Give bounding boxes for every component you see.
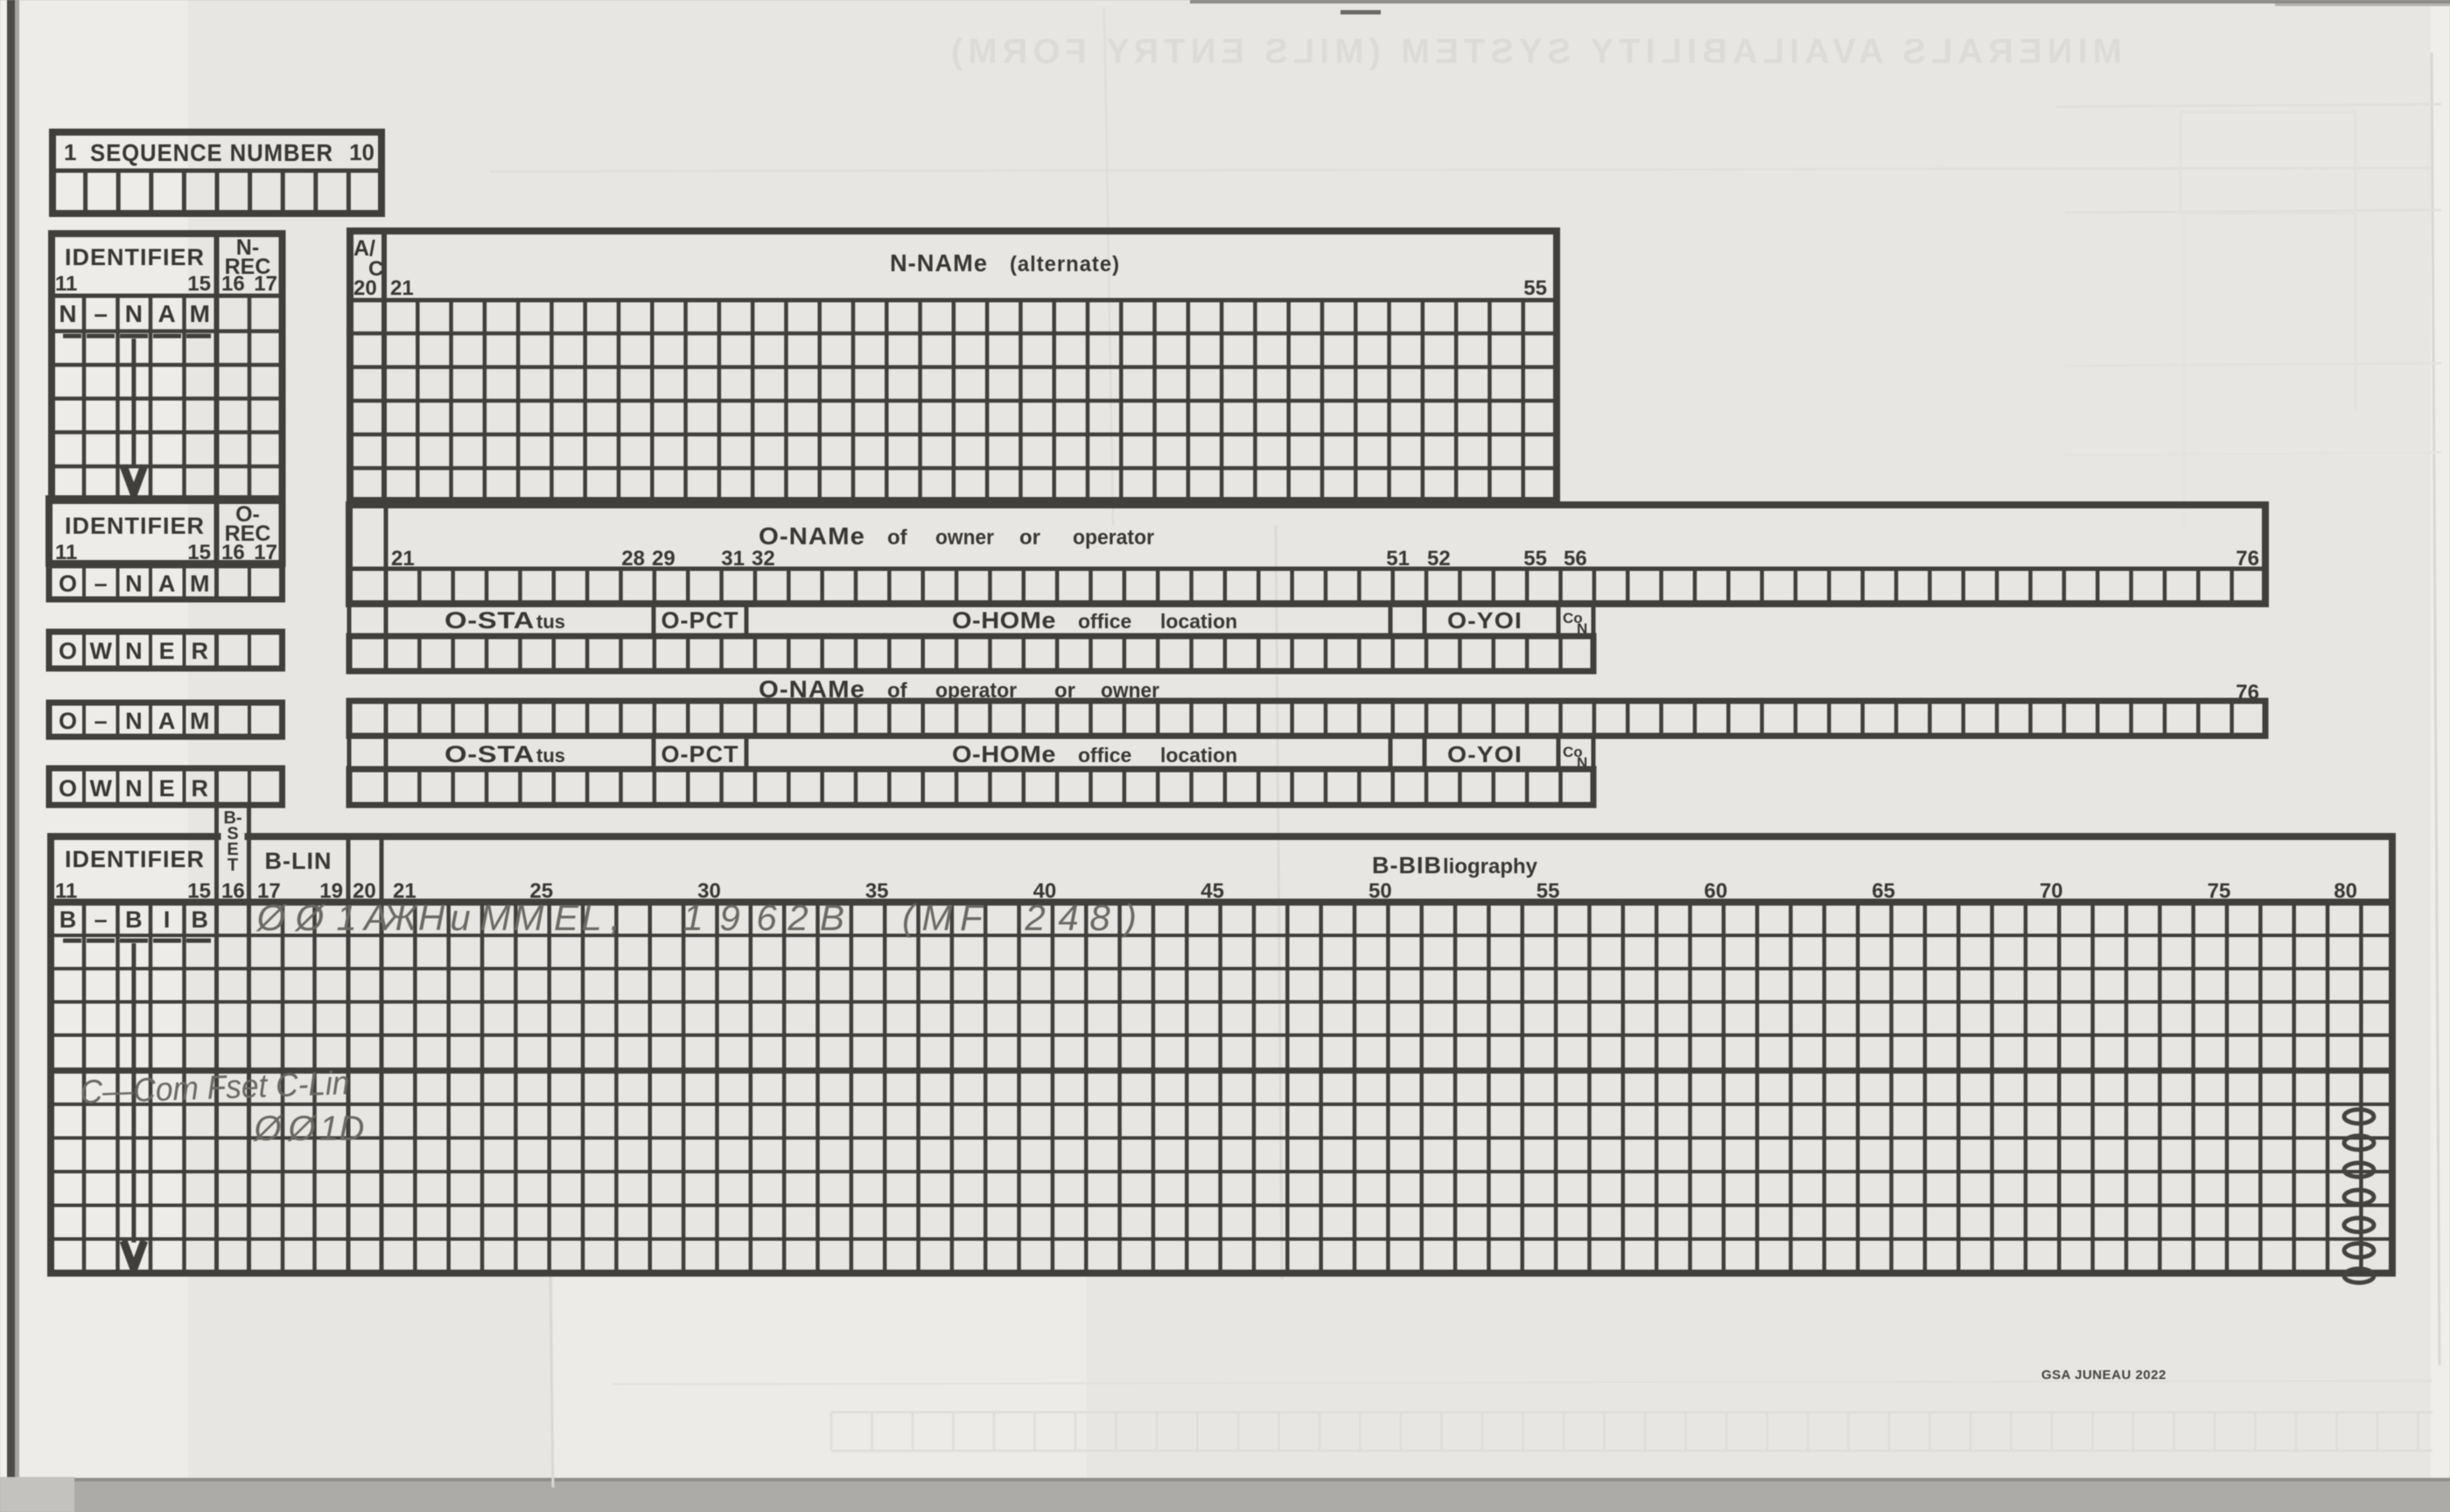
svg-text:N: N — [125, 775, 143, 801]
svg-text:GSA JUNEAU 2022: GSA JUNEAU 2022 — [2041, 1368, 2166, 1382]
svg-text:N: N — [125, 300, 143, 327]
svg-text:N: N — [125, 708, 143, 734]
svg-text:M: M — [514, 897, 544, 938]
svg-text:O: O — [59, 638, 77, 664]
svg-text:32: 32 — [752, 547, 775, 570]
svg-text:location: location — [1160, 610, 1237, 633]
svg-text:20: 20 — [353, 276, 377, 300]
svg-text:O-YOI: O-YOI — [1447, 607, 1522, 633]
svg-text:operator: operator — [1073, 526, 1154, 549]
svg-text:55: 55 — [1523, 276, 1547, 300]
svg-text:IDENTIFIER: IDENTIFIER — [65, 513, 205, 539]
svg-text:W: W — [89, 638, 112, 664]
svg-text:O: O — [59, 570, 77, 597]
svg-text:Ж: Ж — [381, 897, 419, 938]
svg-text:4: 4 — [1058, 897, 1078, 938]
svg-text:N: N — [125, 570, 143, 597]
svg-text:2: 2 — [1024, 897, 1045, 938]
svg-text:15: 15 — [187, 541, 211, 564]
svg-text:1: 1 — [682, 897, 703, 938]
svg-text:2: 2 — [787, 897, 808, 938]
svg-text:M: M — [922, 897, 953, 938]
svg-text:76: 76 — [2236, 547, 2259, 570]
svg-text:O-STA: O-STA — [444, 741, 535, 767]
svg-text:O-NAMe: O-NAMe — [759, 522, 865, 549]
svg-text:F: F — [960, 897, 984, 938]
svg-text:liography: liography — [1443, 855, 1538, 878]
svg-text:8: 8 — [1089, 897, 1110, 938]
svg-text:28: 28 — [621, 547, 645, 570]
svg-text:N: N — [59, 300, 76, 327]
svg-text:29: 29 — [652, 547, 675, 570]
svg-text:Ø: Ø — [294, 897, 326, 938]
svg-text:21: 21 — [390, 276, 414, 300]
svg-text:tus: tus — [536, 611, 565, 633]
svg-text:B: B — [192, 906, 209, 933]
svg-text:21: 21 — [391, 547, 415, 570]
svg-text:W: W — [89, 775, 112, 801]
svg-text:15: 15 — [187, 272, 211, 296]
svg-text:–: – — [94, 570, 108, 597]
svg-text:A: A — [158, 570, 176, 597]
svg-text:Ø: Ø — [252, 1109, 283, 1148]
svg-text:tus: tus — [536, 745, 565, 766]
svg-text:10: 10 — [349, 139, 374, 165]
svg-text:I: I — [164, 906, 171, 933]
svg-text:M: M — [480, 897, 511, 938]
svg-text:11: 11 — [55, 272, 77, 296]
svg-text:D: D — [339, 1109, 365, 1148]
svg-text:1: 1 — [336, 897, 356, 938]
svg-text:52: 52 — [1427, 547, 1451, 570]
svg-text:M: M — [190, 708, 210, 734]
svg-text:O-HOMe: O-HOMe — [952, 741, 1056, 767]
svg-text:R: R — [192, 638, 209, 664]
svg-text:or: or — [1019, 526, 1040, 549]
svg-text:Ø: Ø — [286, 1109, 318, 1148]
svg-text:B: B — [125, 906, 143, 933]
svg-text:O-YOI: O-YOI — [1447, 741, 1522, 767]
svg-text:O-PCT: O-PCT — [661, 607, 739, 633]
svg-text:–: – — [94, 300, 108, 327]
svg-text:N: N — [125, 638, 143, 664]
svg-text:office: office — [1078, 744, 1131, 766]
svg-text:T: T — [227, 856, 238, 875]
svg-text:location: location — [1160, 744, 1237, 766]
svg-text:of: of — [887, 526, 908, 549]
svg-text:B: B — [820, 897, 844, 938]
svg-text:11: 11 — [55, 541, 77, 564]
svg-text:N-NAMe: N-NAMe — [890, 249, 988, 276]
svg-text:H: H — [418, 897, 445, 938]
svg-text:office: office — [1078, 610, 1131, 633]
svg-text:L: L — [581, 897, 601, 938]
svg-text:E: E — [554, 897, 579, 938]
svg-text:R: R — [192, 775, 209, 801]
svg-text:B-BIB: B-BIB — [1372, 852, 1442, 878]
svg-text:55: 55 — [1523, 547, 1547, 570]
svg-text:B-LIN: B-LIN — [265, 848, 332, 874]
svg-text:(alternate): (alternate) — [1010, 252, 1120, 276]
svg-text:owner: owner — [935, 526, 994, 549]
svg-text:B: B — [59, 906, 77, 933]
svg-text:31: 31 — [721, 547, 745, 570]
svg-text:IDENTIFIER: IDENTIFIER — [65, 846, 205, 872]
svg-text:E: E — [159, 775, 175, 801]
svg-text:IDENTIFIER: IDENTIFIER — [65, 244, 205, 270]
svg-text:SEQUENCE NUMBER: SEQUENCE NUMBER — [90, 139, 333, 166]
svg-text:–: – — [94, 708, 108, 734]
svg-text:Ø: Ø — [255, 897, 288, 938]
svg-text:A: A — [158, 708, 176, 734]
svg-text:REC: REC — [225, 255, 271, 279]
svg-text:51: 51 — [1386, 547, 1410, 570]
svg-text:O: O — [59, 775, 77, 801]
svg-text:M: M — [190, 570, 210, 597]
svg-text:REC: REC — [225, 521, 271, 546]
svg-text:O-HOMe: O-HOMe — [952, 607, 1056, 633]
svg-text:1: 1 — [319, 1109, 339, 1148]
svg-text:O: O — [59, 708, 77, 734]
svg-text:MINERALS AVAILABILITY SYSTEM: MINERALS AVAILABILITY SYSTEM (MILS ENTRY… — [946, 32, 2122, 71]
svg-text:9: 9 — [719, 897, 739, 938]
svg-text:6: 6 — [756, 897, 777, 938]
svg-text:u: u — [450, 897, 470, 938]
svg-text:O-STA: O-STA — [444, 607, 535, 633]
svg-text:1: 1 — [64, 139, 76, 165]
svg-text:M: M — [190, 300, 210, 327]
svg-text:–: – — [94, 906, 108, 933]
svg-text:56: 56 — [1564, 547, 1587, 570]
svg-text:O-PCT: O-PCT — [661, 741, 739, 767]
svg-text:A: A — [157, 300, 175, 327]
svg-text:E: E — [159, 638, 175, 664]
svg-text:,: , — [610, 897, 620, 938]
